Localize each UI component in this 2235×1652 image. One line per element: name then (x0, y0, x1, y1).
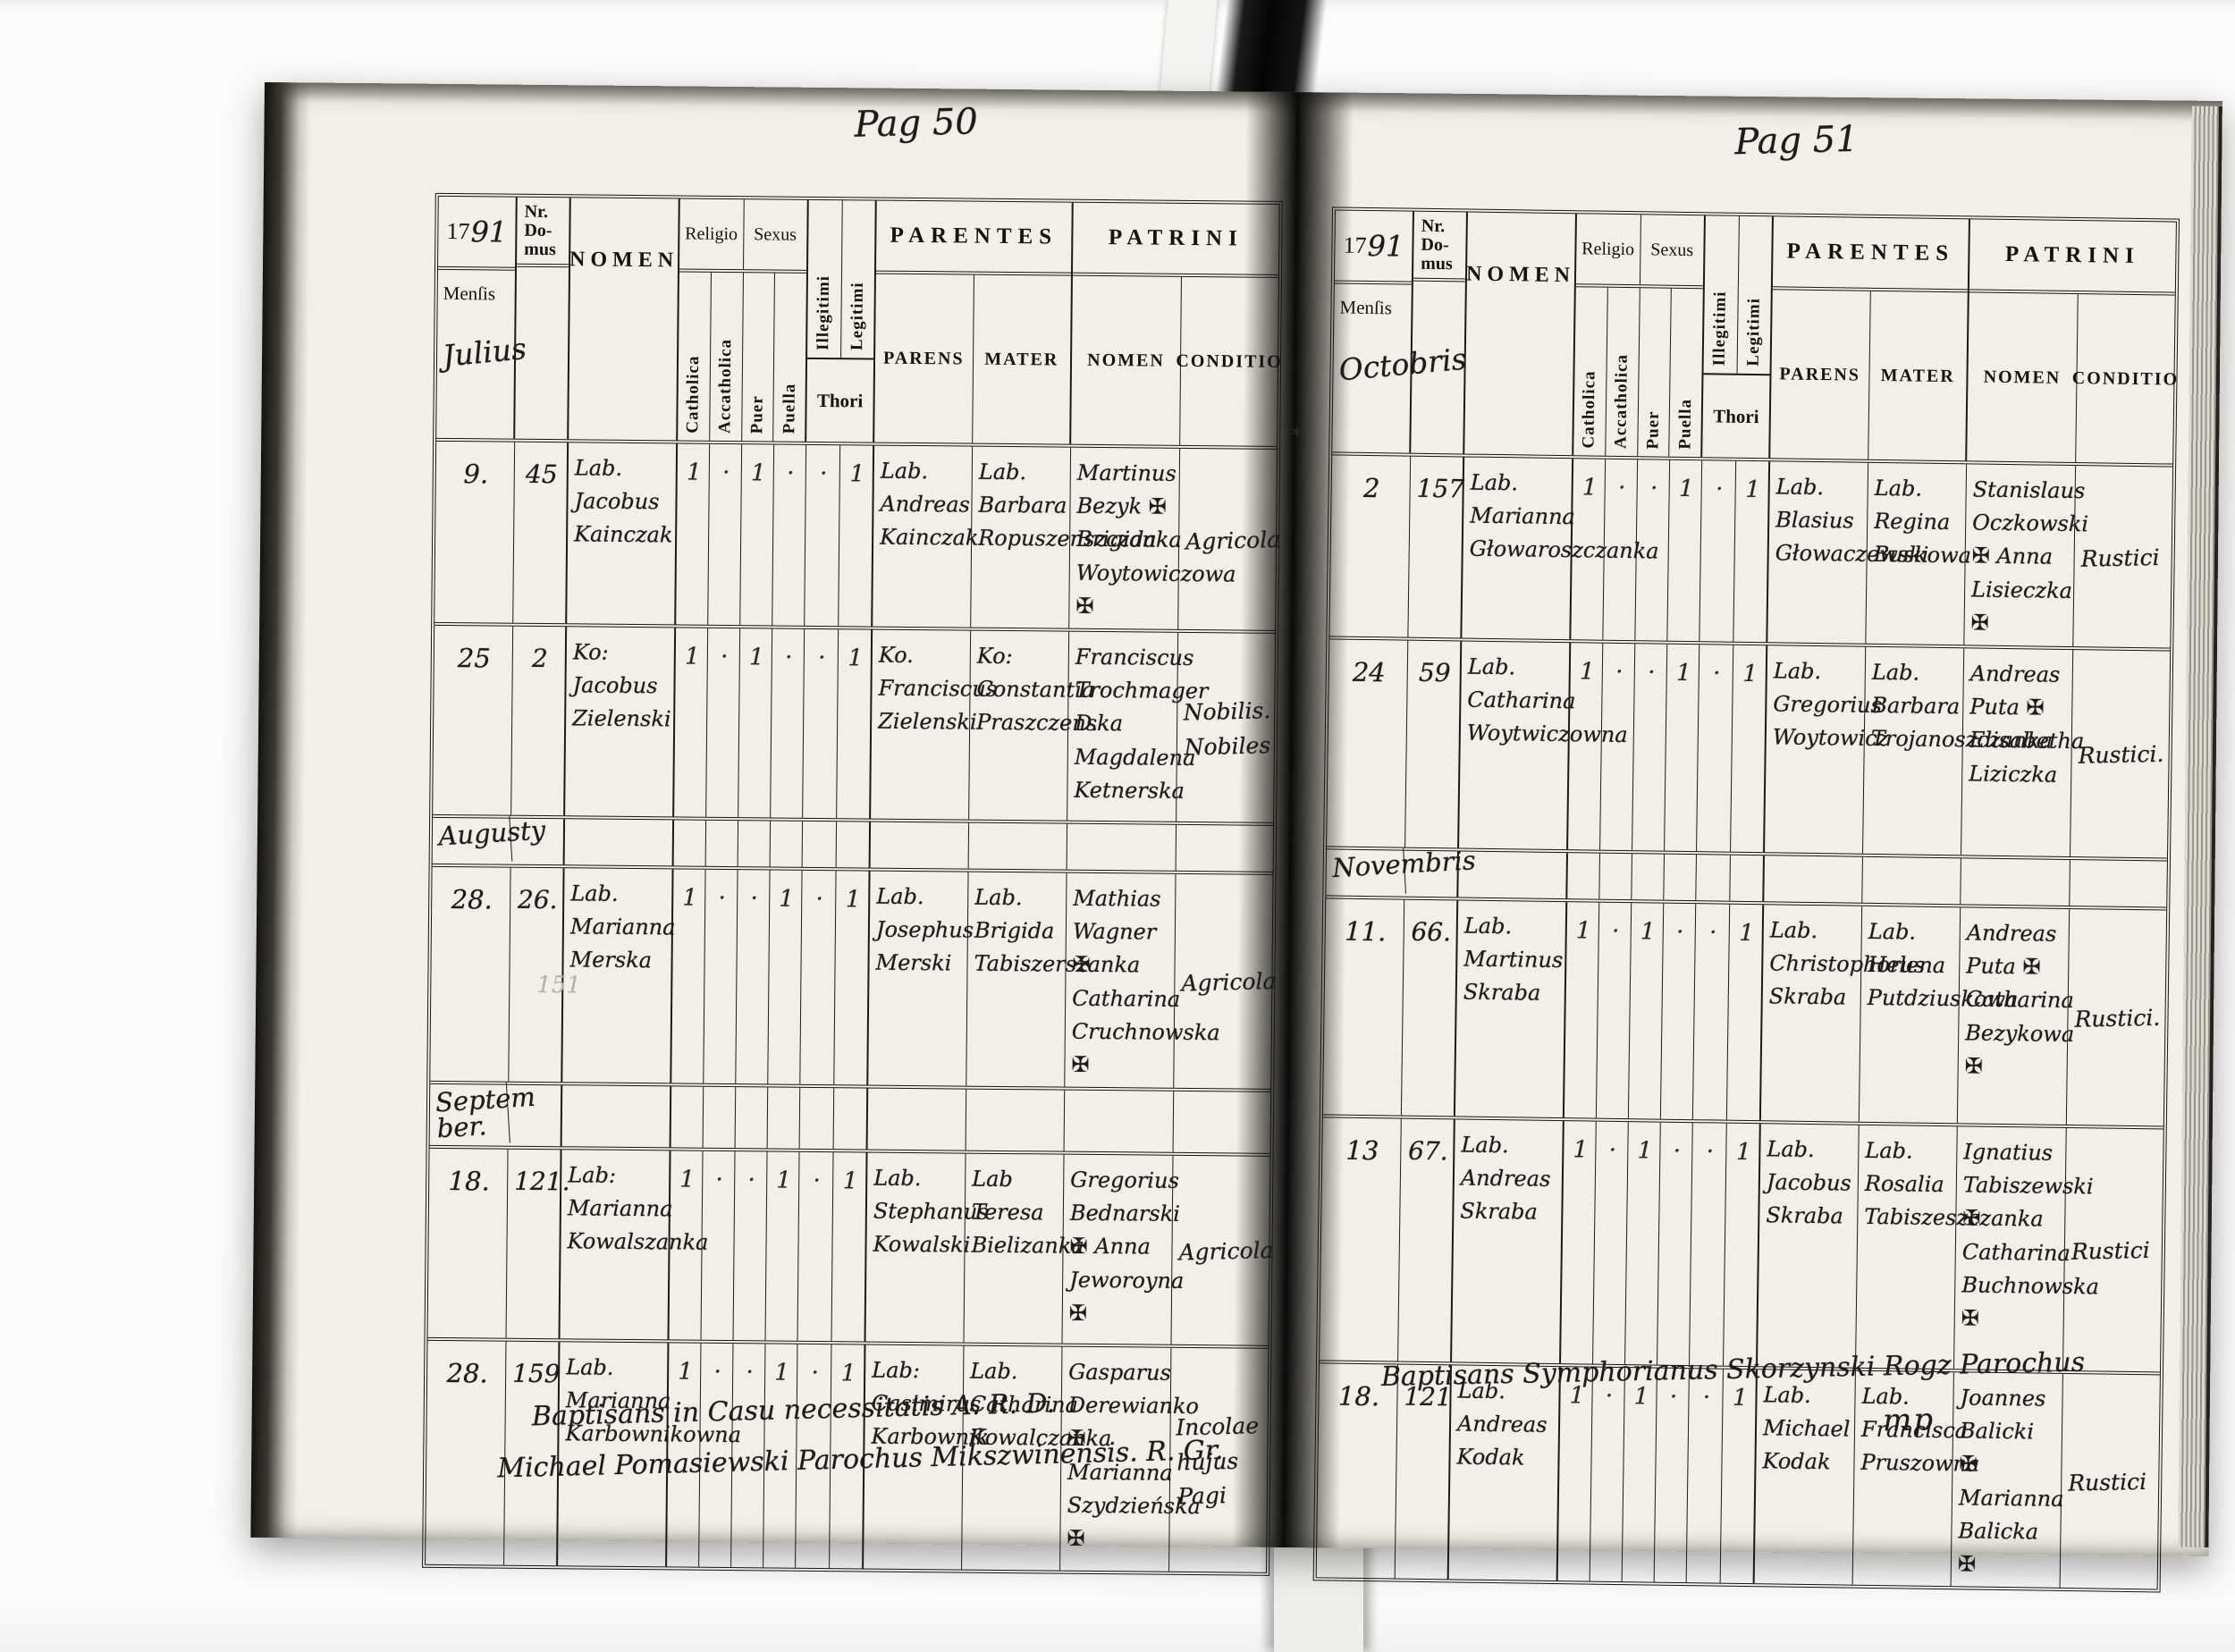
parens-label: PARENS (1770, 290, 1870, 459)
empty-cell (1567, 853, 1600, 898)
empty-cell (1961, 858, 2071, 906)
mark-catholica: 1 (1564, 902, 1599, 1117)
mark-legitimi: 1 (1733, 461, 1770, 642)
empty-cell (969, 823, 1067, 870)
empty-cell (771, 821, 803, 866)
illegitimi-label: Illegitimi (814, 275, 834, 350)
mark-puer: · (1635, 459, 1670, 640)
entry-nr: 67. (1398, 1119, 1455, 1362)
book-binding-left (250, 82, 311, 1538)
entry-nomen: Lab. Martinus Skraba (1455, 900, 1567, 1117)
nomen-label: NOMEN (569, 248, 679, 273)
mensis-label: Menſis (1339, 297, 1392, 319)
empty-cell (674, 820, 706, 865)
empty-cell (706, 821, 738, 866)
puer-label: Puer (747, 395, 767, 434)
empty-cell (1065, 1091, 1175, 1152)
mark-puer: · (734, 1151, 768, 1340)
empty-cell (738, 821, 771, 866)
page-edges-right (2178, 106, 2222, 1547)
mark-puella: · (1661, 904, 1696, 1119)
entry-nomen: Ko: Jacobus Zielenski (565, 627, 676, 816)
register-table-left: 1791 Menſis Julius Nr. Do- mus NOMEN (422, 193, 1283, 1576)
entry-mater: Lab. Barbara Ropuszenszczanka (971, 447, 1071, 628)
column-nr-domus: Nr. Do- mus (1411, 212, 1468, 454)
mark-puer: · (1632, 644, 1667, 850)
year-script: 91 (1367, 229, 1404, 264)
column-mensis: 1791 Menſis Octobris (1332, 210, 1414, 452)
mark-legitimi: 1 (839, 445, 874, 626)
table-row: 1367.Lab. Andreas Skraba1·1··1Lab. Jacob… (1320, 1117, 2163, 1375)
column-group-parentes: PARENTES PARENS MATER (1770, 216, 1970, 460)
empty-cell (671, 1086, 704, 1147)
parentes-label: PARENTES (1773, 216, 1969, 292)
patrini-nomen-label: NOMEN (1071, 276, 1182, 445)
mark-legitimi: 1 (832, 1152, 868, 1341)
empty-cell (1067, 824, 1177, 871)
table-row: 11.66.Lab. Martinus Skraba1·1··1Lab. Chr… (1323, 898, 2166, 1129)
entry-mater: Lab. Brigida Tabiszerszanka (966, 872, 1067, 1087)
mark-legitimi: 1 (1731, 645, 1767, 853)
conditio-label: CONDITIO (1180, 277, 1278, 446)
mark-acatholica: · (708, 444, 742, 625)
entry-conditio: Agricola (1172, 873, 1274, 1090)
empty-cell (1730, 855, 1765, 902)
entry-conditio: Rustici (2073, 466, 2173, 648)
puella-label: Puella (780, 383, 800, 434)
register-table-right: 1791 Menſis Octobris Nr. Do- mus NOMEN (1313, 206, 2180, 1592)
entry-parens: Lab. Gregorius Woytowicz (1765, 645, 1866, 854)
entry-conditio: Agricola (1170, 1155, 1271, 1346)
year-printed: 17 (446, 218, 469, 245)
month-section-row: Septem ber. (430, 1084, 1271, 1157)
entry-conditio: Rustici. (2066, 909, 2167, 1126)
catholica-label: Catholica (1580, 370, 1600, 448)
column-mensis: 1791 Menſis Julius (436, 197, 518, 439)
mark-puella: · (772, 444, 806, 625)
entry-mater: Lab Teresa Bielizanka (965, 1154, 1065, 1344)
mark-illegitimi: · (805, 445, 840, 626)
mark-puer: 1 (738, 628, 772, 817)
entry-patrini-nomen: Ignatius Tabiszewski ✠ Catharina Buchnow… (1954, 1126, 2067, 1370)
mark-catholica: 1 (1561, 1121, 1597, 1363)
table-row: 2157Lab. Marianna Głowaroszczanka1··1·1L… (1329, 455, 2172, 651)
empty-cell (704, 1087, 737, 1148)
acatholica-label: Accatholica (715, 339, 736, 434)
legitimi-label: Legitimi (1743, 298, 1764, 367)
mark-catholica: 1 (674, 628, 708, 816)
entry-conditio: Nobilis. Nobiles (1175, 632, 1276, 823)
entry-conditio: Rustici (2062, 1128, 2164, 1372)
entry-parens: Lab. Andreas Kainczak (873, 446, 973, 628)
empty-cell (1862, 857, 1961, 905)
entry-mater: Lab. Rosalia Tabiszeszczanka (1856, 1125, 1958, 1370)
puer-label: Puer (1643, 410, 1664, 449)
columns-religio-sexus: Religio Sexus Catholica Accatholica Puer… (1573, 214, 1706, 457)
entry-patrini-nomen: Franciscus Trochmager D. Magdalena Ketne… (1067, 632, 1178, 822)
mark-puella: · (771, 628, 805, 817)
empty-cell (803, 822, 837, 867)
mark-puella: 1 (766, 1152, 800, 1341)
mark-illegitimi: · (800, 871, 836, 1084)
entry-nomen: Lab. Jacobus Kainczak (567, 442, 678, 624)
scan-background: Pag 50 Pag 51 * 1791 Menſis Julius Nr. D… (0, 0, 2235, 1652)
empty-cell (837, 822, 871, 867)
table-header: 1791 Menſis Julius Nr. Do- mus NOMEN (436, 197, 1279, 450)
empty-cell (966, 1090, 1066, 1151)
empty-cell (1177, 825, 1273, 872)
entry-parens: Lab. Jacobus Skraba (1758, 1124, 1860, 1368)
empty-cell (1764, 855, 1863, 903)
table-row: 2459Lab. Catharina Woytwiczowna1··1·1Lab… (1327, 639, 2170, 861)
month-name: Octobris (1337, 347, 1408, 388)
priest-signature: mp (1882, 1388, 2087, 1450)
mark-puer: 1 (1629, 903, 1664, 1118)
entry-patrini-nomen: Gregorius Bednarski ✠ Anna Jeworoyna ✠ (1062, 1155, 1173, 1344)
entry-date: 25 (433, 626, 513, 815)
year-cell: 1791 (1335, 210, 1413, 284)
empty-cell (768, 1088, 801, 1149)
mark-catholica: 1 (1571, 459, 1606, 639)
entry-nomen: Lab. Andreas Skraba (1452, 1119, 1564, 1363)
entry-nr: 59 (1405, 641, 1462, 848)
mark-catholica: 1 (676, 443, 710, 624)
register-book: Pag 50 Pag 51 * 1791 Menſis Julius Nr. D… (250, 82, 2222, 1556)
page-number-right: Pag 51 (1734, 119, 1859, 163)
entry-date: 18. (428, 1149, 509, 1338)
mark-puella: · (1657, 1123, 1693, 1365)
column-group-patrini: PATRINI NOMEN CONDITIO (1071, 203, 1279, 446)
entry-patrini-nomen: Martinus Bezyk ✠ Brigida Woytowiczowa ✠ (1069, 448, 1180, 629)
empty-cell (1599, 854, 1632, 899)
empty-cell (1664, 855, 1697, 900)
thori-label: Thori (806, 359, 873, 442)
mark-acatholica: · (704, 870, 738, 1083)
entry-patrini-nomen: Andreas Puta ✠ Elisabetha Liziczka (1961, 648, 2073, 856)
illegitimi-label: Illegitimi (1710, 291, 1731, 366)
conditio-label: CONDITIO (2076, 294, 2175, 463)
column-nr-domus: Nr. Do- mus (515, 198, 571, 440)
empty-cell (1632, 854, 1665, 899)
year-cell: 1791 (438, 197, 516, 271)
mark-acatholica: · (1603, 459, 1638, 640)
entry-date: 2 (1329, 455, 1411, 636)
mark-puella: 1 (1667, 460, 1702, 641)
entry-nomen: Lab. Marianna Głowaroszczanka (1462, 458, 1573, 640)
empty-cell (2070, 860, 2167, 907)
nr-domus-label: Nr. Do- mus (1413, 212, 1466, 282)
margin-mark: * (1291, 423, 1303, 450)
nomen-label: NOMEN (1466, 263, 1575, 289)
catholica-label: Catholica (684, 355, 704, 433)
year-script: 91 (470, 215, 507, 249)
footnote-line-1: Baptisans Symphorianus Skorzynski Rogz P… (1381, 1347, 2086, 1393)
entry-patrini-nomen: Andreas Puta ✠ Catharina Bezykowa ✠ (1958, 907, 2070, 1125)
columns-religio-sexus: Religio Sexus Catholica Accatholica Puer… (678, 198, 809, 441)
entry-parens: Lab. Stephanus Kowalski (866, 1153, 966, 1343)
mark-puer: · (736, 870, 770, 1083)
footnote-line-1: Baptisans in Casu necessitatis A. R. D. (531, 1388, 1055, 1433)
patrini-nomen-label: NOMEN (1967, 292, 2079, 462)
entry-date: 9. (434, 442, 515, 623)
column-group-patrini: PATRINI NOMEN CONDITIO (1967, 219, 2176, 463)
empty-cell (800, 1088, 835, 1149)
acatholica-label: Accatholica (1611, 354, 1632, 449)
mark-acatholica: · (1600, 644, 1635, 850)
empty-cell (871, 822, 969, 868)
mark-acatholica: · (1593, 1122, 1629, 1364)
mark-legitimi: 1 (834, 871, 870, 1084)
mater-label: MATER (973, 275, 1071, 444)
empty-cell (565, 819, 674, 865)
patrini-label: PATRINI (1969, 219, 2176, 295)
mark-illegitimi: · (1697, 645, 1733, 852)
table-row: 18.121.Lab: Marianna Kowalszanka1··1·1La… (427, 1149, 1269, 1349)
legitimi-label: Legitimi (848, 282, 868, 351)
mark-illegitimi: · (1693, 904, 1730, 1120)
mark-illegitimi: · (803, 629, 839, 818)
parens-label: PARENS (874, 274, 974, 443)
entry-date: 13 (1320, 1117, 1402, 1361)
mark-legitimi: 1 (1727, 905, 1764, 1121)
entry-mater: Ko: Constantia Praszczenska (969, 631, 1069, 821)
table-header: 1791 Menſis Octobris Nr. Do- mus NOMEN (1332, 210, 2176, 467)
empty-cell (736, 1087, 769, 1148)
puella-label: Puella (1675, 399, 1696, 450)
pencil-note: 151 (536, 972, 581, 999)
month-section-label: Septem ber. (428, 1083, 510, 1148)
table-row: 9.45Lab. Jacobus Kainczak1·1··1Lab. Andr… (434, 442, 1277, 634)
entry-date: 28. (430, 867, 510, 1082)
thori-label: Thori (1702, 375, 1769, 458)
mark-puella: 1 (1665, 645, 1699, 851)
page-number-left: Pag 50 (854, 101, 978, 145)
entry-conditio: Agricola (1177, 448, 1278, 631)
mark-catholica: 1 (670, 1150, 704, 1339)
entry-nr: 45 (513, 442, 569, 624)
entry-nr: 121. (507, 1150, 562, 1339)
mater-label: MATER (1868, 291, 1968, 460)
month-name: Julius (441, 333, 511, 374)
entry-nr: 157 (1408, 457, 1464, 638)
mark-acatholica: · (702, 1151, 736, 1340)
mark-legitimi: 1 (837, 629, 873, 818)
entry-nr: 2 (511, 627, 567, 816)
entry-parens: Lab. Blasius Głowaczewski (1767, 461, 1868, 643)
religio-label: Religio (1576, 214, 1641, 284)
entry-date: 28. (426, 1341, 506, 1565)
column-group-parentes: PARENTES PARENS MATER (874, 201, 1074, 444)
month-section-label: Augusty (431, 816, 512, 866)
sexus-label: Sexus (744, 199, 807, 270)
entry-conditio: Rustici. (2070, 650, 2171, 858)
column-nomen: NOMEN (1464, 213, 1577, 456)
religio-label: Religio (679, 198, 744, 269)
empty-cell (868, 1089, 967, 1150)
mark-acatholica: · (1597, 903, 1632, 1118)
entry-parens: Lab. Christophorus Skraba (1761, 905, 1862, 1122)
year-printed: 17 (1343, 232, 1366, 259)
column-nomen: NOMEN (569, 198, 680, 440)
baptism-footnote-left: Baptisans in Casu necessitatis A. R. D. … (531, 1374, 1224, 1494)
entry-patrini-nomen: Mathias Wagner ✠ Catharina Cruchnowska ✠ (1065, 873, 1176, 1088)
entry-mater: Lab. Regina Buskowa (1866, 463, 1967, 645)
mark-illegitimi: · (1690, 1123, 1727, 1366)
column-thori: Illegitimi Legitimi Thori (1702, 215, 1774, 458)
mark-illegitimi: · (798, 1152, 834, 1341)
empty-cell (1696, 855, 1731, 901)
patrini-label: PATRINI (1073, 203, 1279, 278)
mensis-label: Menſis (443, 282, 496, 305)
mark-puer: 1 (740, 444, 774, 625)
entry-parens: Lab. Josephus Merski (868, 871, 968, 1085)
mark-catholica: 1 (1568, 643, 1603, 849)
mark-puella: 1 (768, 870, 802, 1083)
mark-legitimi: 1 (1724, 1124, 1761, 1367)
empty-cell (1174, 1091, 1271, 1153)
month-section-label: Novembris (1325, 848, 1406, 898)
entry-mater: Lab. Helena Putdziuskowa (1860, 906, 1961, 1124)
parentes-label: PARENTES (876, 201, 1072, 276)
mark-catholica: 1 (671, 869, 705, 1083)
entry-mater: Lab. Barbara Trojanoszczanka (1863, 647, 1964, 855)
mark-puer: 1 (1625, 1122, 1661, 1364)
entry-date: 11. (1323, 898, 1404, 1115)
nr-domus-label: Nr. Do- mus (517, 198, 569, 268)
mark-illegitimi: · (1699, 460, 1736, 641)
entry-nomen: Lab. Catharina Woytwiczowna (1459, 641, 1571, 849)
entry-nr: 66. (1402, 900, 1458, 1117)
baptism-footnote-right: Baptisans Symphorianus Skorzynski Rogz P… (1380, 1337, 2087, 1461)
empty-cell (562, 1085, 672, 1147)
entry-nomen: Lab: Marianna Kowalszanka (561, 1150, 671, 1339)
mark-acatholica: · (706, 628, 740, 817)
entry-patrini-nomen: Stanislaus Oczkowski ✠ Anna Lisieczka ✠ (1964, 464, 2076, 646)
entry-date: 24 (1327, 639, 1408, 847)
entry-parens: Ko. Franciscus Zielenski (871, 629, 971, 819)
sexus-label: Sexus (1640, 215, 1704, 285)
month-section-row: Augusty (433, 818, 1273, 875)
table-row: 252Ko: Jacobus Zielenski1·1··1Ko. Franci… (433, 626, 1275, 826)
column-thori: Illegitimi Legitimi Thori (806, 200, 877, 442)
empty-cell (834, 1088, 869, 1149)
